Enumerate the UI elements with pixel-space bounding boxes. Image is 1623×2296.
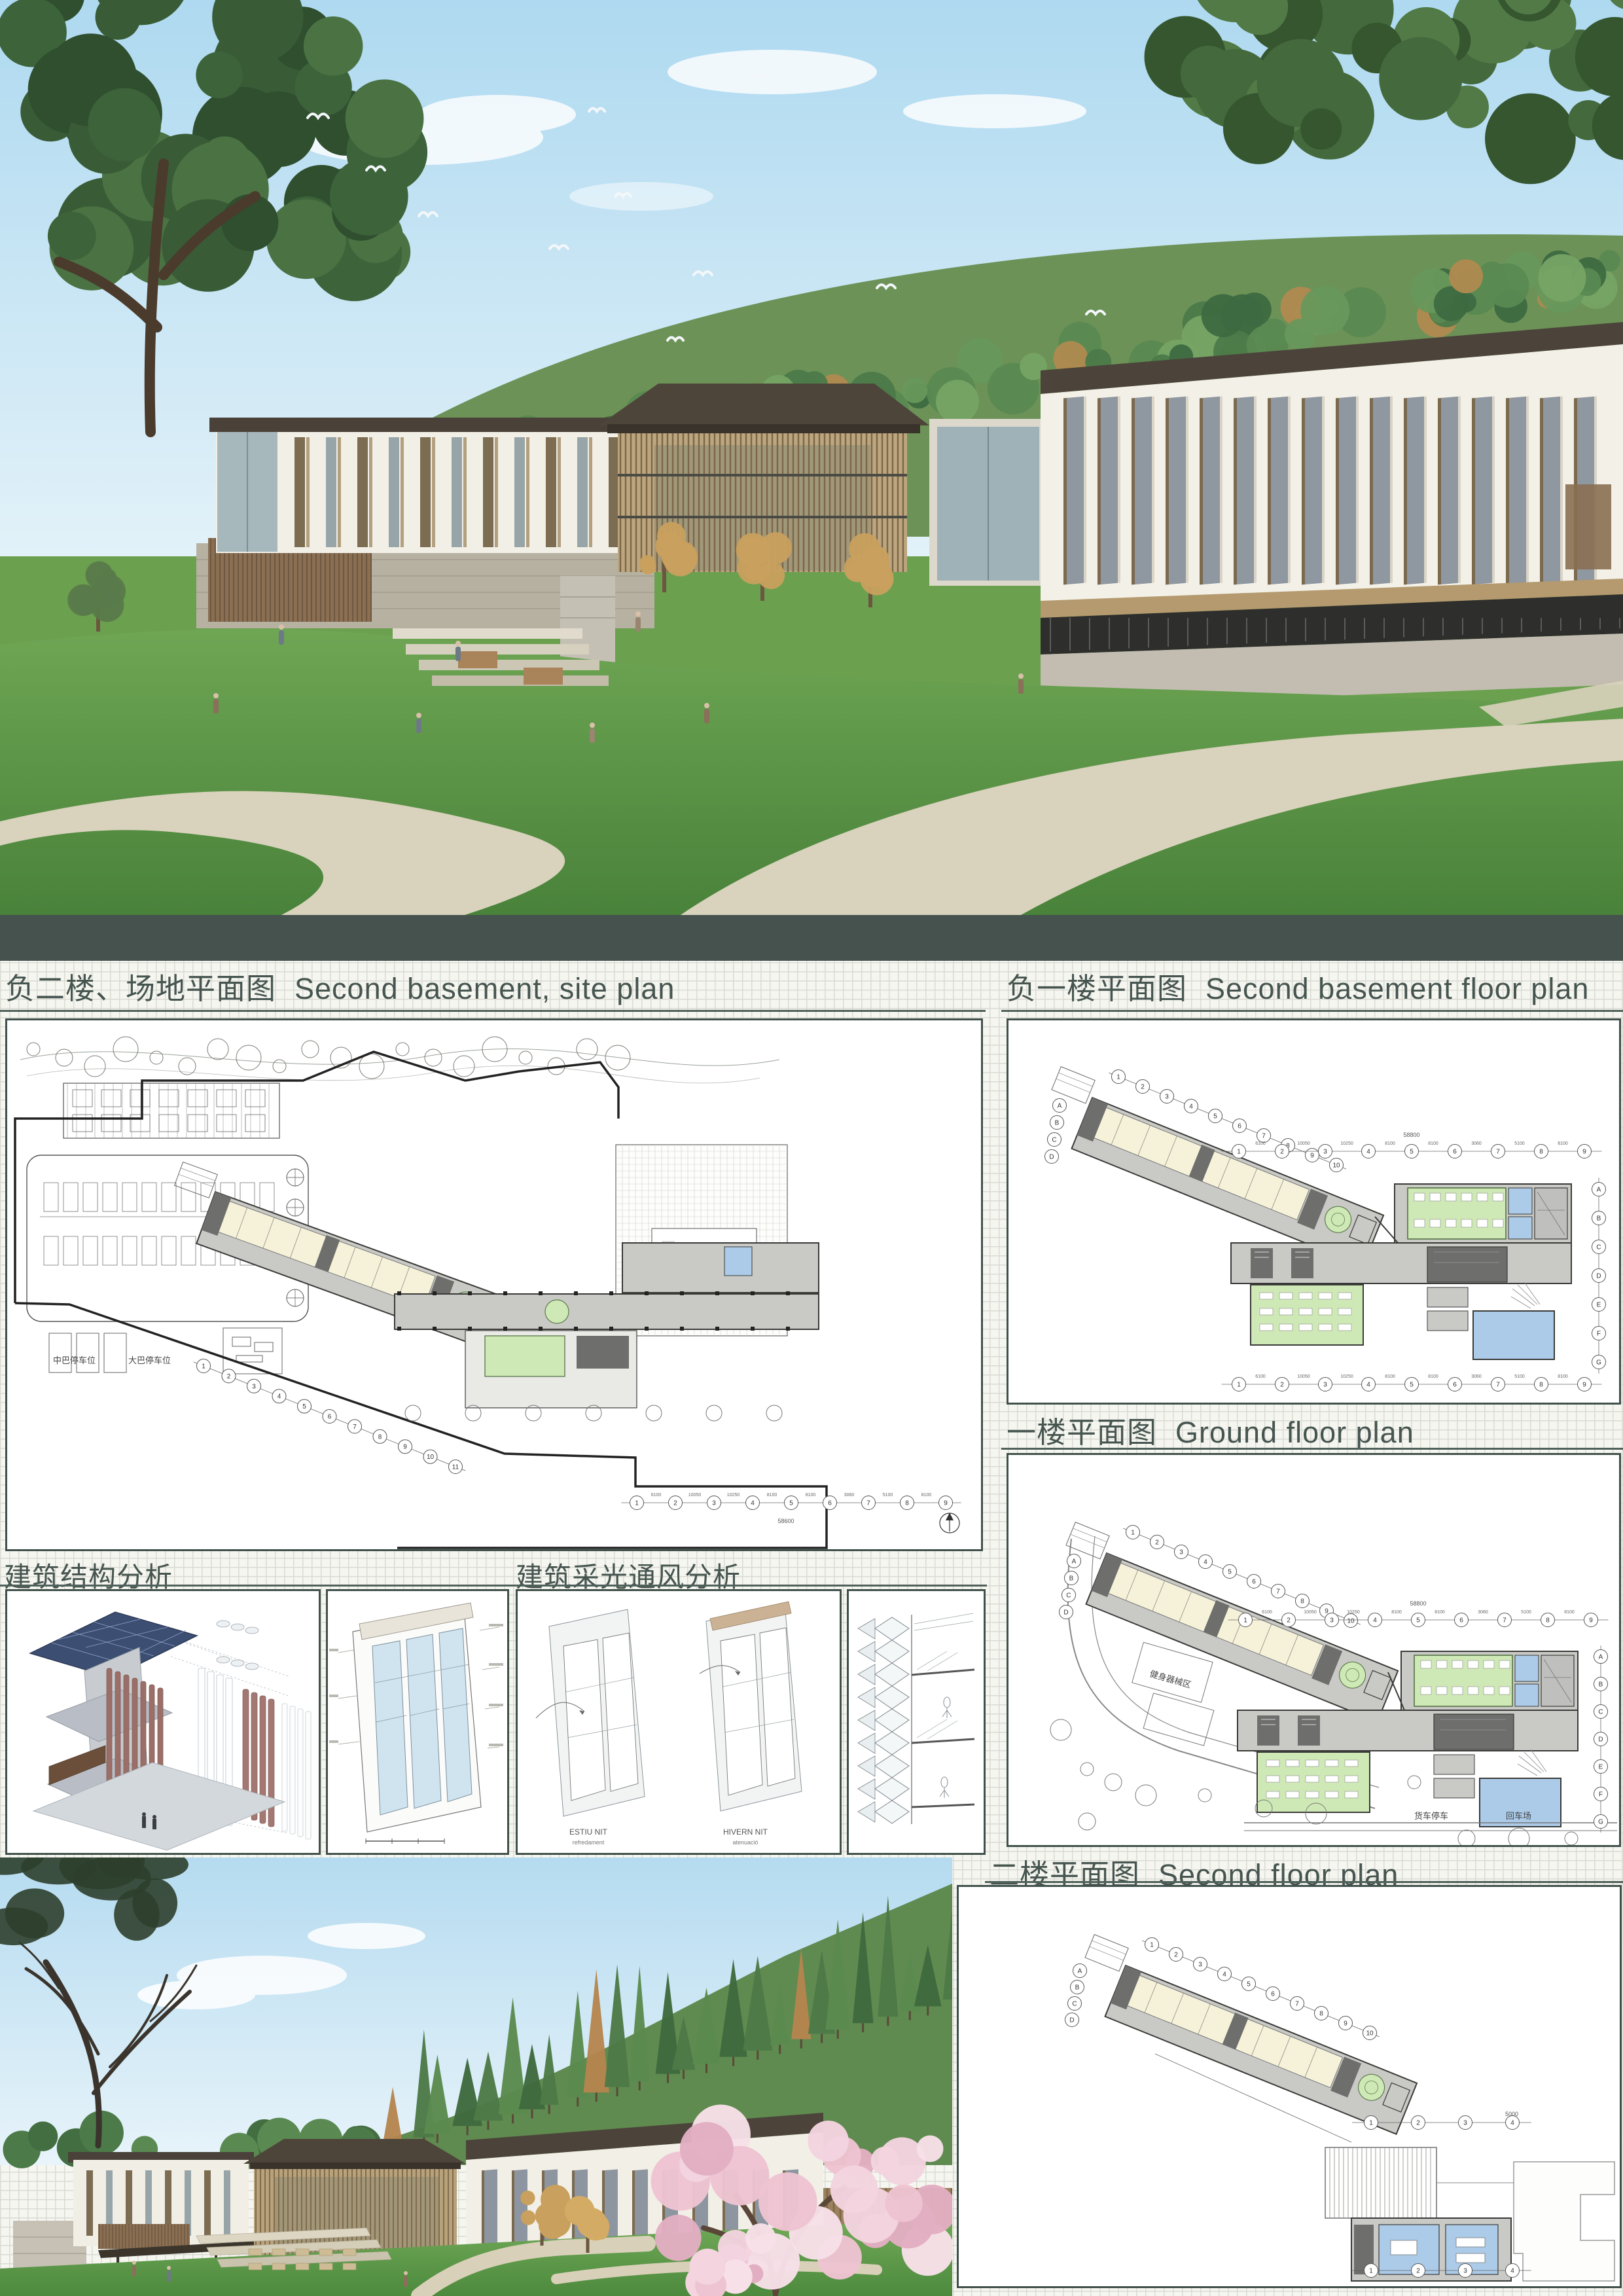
svg-text:B: B: [1075, 1984, 1080, 1992]
svg-text:C: C: [1066, 1592, 1071, 1600]
svg-text:3060: 3060: [1478, 1610, 1488, 1615]
svg-text:9: 9: [1589, 1617, 1593, 1624]
svg-text:6: 6: [828, 1500, 832, 1507]
svg-text:2: 2: [227, 1373, 231, 1380]
hero-render: [0, 0, 1623, 915]
svg-text:4: 4: [277, 1393, 281, 1401]
svg-text:8100: 8100: [1428, 1374, 1438, 1379]
svg-text:6100: 6100: [1255, 1374, 1266, 1379]
svg-text:8: 8: [1539, 1382, 1543, 1389]
svg-text:5100: 5100: [1514, 1141, 1525, 1146]
svg-text:A: A: [1597, 1187, 1601, 1194]
svg-text:1: 1: [1369, 2120, 1373, 2127]
svg-text:B: B: [1597, 1215, 1601, 1223]
svg-text:8: 8: [1300, 1598, 1304, 1605]
structure-exploded-axon-panel: [5, 1589, 321, 1855]
site-plan-title: 负二楼、场地平面图Second basement, site plan: [5, 965, 675, 1007]
svg-text:8100: 8100: [1564, 1610, 1575, 1615]
svg-text:G: G: [1598, 1819, 1603, 1826]
svg-text:8100: 8100: [806, 1493, 816, 1498]
svg-text:1: 1: [1369, 2268, 1373, 2275]
svg-text:4: 4: [1510, 2268, 1514, 2275]
svg-text:9: 9: [944, 1500, 948, 1507]
svg-text:2: 2: [1141, 1084, 1145, 1091]
svg-text:5100: 5100: [883, 1493, 893, 1498]
ground-total-dim: 58800: [1410, 1600, 1426, 1607]
svg-text:9: 9: [403, 1444, 407, 1451]
svg-text:3: 3: [1463, 2120, 1467, 2127]
svg-text:C: C: [1052, 1137, 1056, 1144]
svg-text:10: 10: [1366, 2030, 1374, 2037]
site-plan-panel: 中巴停车位 大巴停车位 1234567891011 12345678961001…: [5, 1018, 983, 1551]
svg-text:2: 2: [1416, 2268, 1420, 2275]
svg-text:8: 8: [1319, 2011, 1323, 2018]
svg-text:10: 10: [1332, 1162, 1340, 1170]
svg-text:8100: 8100: [921, 1493, 932, 1498]
site-plan-drawing: 中巴停车位 大巴停车位 1234567891011 12345678961001…: [7, 1020, 981, 1549]
svg-text:3: 3: [712, 1500, 716, 1507]
svg-text:10: 10: [427, 1454, 435, 1461]
svg-text:8100: 8100: [1428, 1141, 1438, 1146]
svg-text:C: C: [1598, 1709, 1603, 1716]
truck-parking-label: 货车停车: [1414, 1811, 1448, 1821]
svg-text:8100: 8100: [1435, 1610, 1445, 1615]
svg-text:4: 4: [1189, 1103, 1193, 1111]
b1-total-dim: 58800: [1403, 1132, 1419, 1138]
svg-text:7: 7: [866, 1500, 870, 1507]
exploded-axon-drawing: [7, 1591, 319, 1853]
svg-text:2: 2: [673, 1500, 677, 1507]
svg-text:5: 5: [1247, 1981, 1251, 1988]
fitness-area-label: 健身器械区: [1149, 1668, 1192, 1689]
svg-text:A: A: [1599, 1654, 1603, 1661]
site-plan-title-zh: 负二楼、场地平面图: [5, 972, 276, 1005]
north-arrow: [940, 1513, 959, 1533]
svg-text:5: 5: [1410, 1149, 1414, 1156]
svg-text:1: 1: [1237, 1149, 1241, 1156]
svg-text:6: 6: [328, 1414, 332, 1421]
svg-text:E: E: [1599, 1764, 1603, 1771]
svg-text:5: 5: [789, 1500, 793, 1507]
title-rule: [1001, 1010, 1623, 1012]
ground-plan-drawing: 健身器械区 货车停车 回车场 12345678910 ABCD 12345678…: [1008, 1455, 1619, 1845]
svg-text:8100: 8100: [1391, 1610, 1402, 1615]
svg-text:1: 1: [1131, 1530, 1135, 1537]
svg-text:5100: 5100: [1514, 1374, 1525, 1379]
svg-text:2: 2: [1280, 1382, 1284, 1389]
svg-text:3060: 3060: [1471, 1374, 1482, 1379]
svg-text:A: A: [1078, 1968, 1082, 1975]
svg-text:8: 8: [1546, 1617, 1550, 1624]
svg-text:C: C: [1072, 2001, 1077, 2008]
svg-text:7: 7: [1496, 1382, 1500, 1389]
svg-text:5: 5: [302, 1403, 306, 1410]
svg-text:A: A: [1072, 1558, 1077, 1566]
second-plan-drawing: 12345678910 ABCD 1234 1234 5000: [959, 1887, 1620, 2286]
b1-plan-title-en: Second basement floor plan: [1205, 972, 1589, 1005]
svg-text:5100: 5100: [1521, 1610, 1531, 1615]
svg-text:10050: 10050: [1304, 1610, 1317, 1615]
turnaround-label: 回车场: [1506, 1811, 1531, 1821]
svg-text:2: 2: [1174, 1952, 1178, 1959]
secondary-render-scene: [0, 1857, 952, 2296]
site-plan-title-en: Second basement, site plan: [294, 972, 675, 1005]
svg-text:4: 4: [1366, 1149, 1370, 1156]
title-rule: [1001, 1448, 1623, 1450]
section-perspective-drawing: [849, 1591, 984, 1853]
svg-text:3: 3: [252, 1383, 256, 1390]
svg-text:1: 1: [1116, 1074, 1120, 1081]
svg-text:2: 2: [1280, 1149, 1284, 1156]
svg-text:8100: 8100: [1558, 1374, 1568, 1379]
svg-text:4: 4: [1373, 1617, 1377, 1624]
svg-text:4: 4: [1510, 2120, 1514, 2127]
svg-text:6100: 6100: [1262, 1610, 1272, 1615]
ground-plan-title: 一楼平面图Ground floor plan: [1007, 1408, 1414, 1451]
secondary-render: [0, 1857, 952, 2296]
ground-plan-title-zh: 一楼平面图: [1007, 1416, 1157, 1449]
svg-text:D: D: [1596, 1273, 1601, 1280]
svg-text:D: D: [1069, 2017, 1074, 2024]
svg-text:2: 2: [1287, 1617, 1291, 1624]
svg-text:3060: 3060: [844, 1493, 855, 1498]
svg-text:7: 7: [1503, 1617, 1507, 1624]
b1-plan-panel: 12345678910 ABCD 12345678961001005010250…: [1007, 1018, 1621, 1405]
svg-text:1: 1: [202, 1363, 205, 1371]
title-rule: [985, 1881, 1623, 1883]
estiu-sublabel: refredament: [573, 1839, 605, 1846]
svg-text:3: 3: [1330, 1617, 1334, 1624]
svg-text:9: 9: [1582, 1382, 1586, 1389]
svg-text:1: 1: [1243, 1617, 1247, 1624]
svg-text:3: 3: [1463, 2268, 1467, 2275]
svg-text:5: 5: [1410, 1382, 1414, 1389]
svg-text:1: 1: [1150, 1942, 1154, 1949]
svg-text:5: 5: [1228, 1569, 1232, 1576]
svg-text:10050: 10050: [1297, 1374, 1310, 1379]
svg-text:9: 9: [1344, 2020, 1347, 2028]
svg-text:6100: 6100: [651, 1493, 662, 1498]
svg-text:1: 1: [1237, 1382, 1241, 1389]
svg-text:2: 2: [1416, 2120, 1420, 2127]
svg-text:2: 2: [1155, 1539, 1159, 1547]
svg-text:G: G: [1596, 1359, 1601, 1367]
svg-text:D: D: [1598, 1736, 1603, 1744]
svg-text:F: F: [1597, 1331, 1601, 1338]
svg-text:4: 4: [1366, 1382, 1370, 1389]
svg-text:9: 9: [1582, 1149, 1586, 1156]
ground-plan-panel: 健身器械区 货车停车 回车场 12345678910 ABCD 12345678…: [1007, 1453, 1621, 1847]
b1-plan-drawing: 12345678910 ABCD 12345678961001005010250…: [1008, 1020, 1619, 1403]
hivern-label: HIVERN NIT: [723, 1827, 768, 1837]
svg-text:B: B: [1069, 1575, 1074, 1583]
svg-text:8100: 8100: [1385, 1141, 1395, 1146]
svg-text:8100: 8100: [1385, 1374, 1395, 1379]
site-total-dim: 58600: [777, 1518, 794, 1524]
svg-text:4: 4: [751, 1500, 755, 1507]
svg-text:6: 6: [1271, 1991, 1275, 1998]
svg-text:D: D: [1049, 1154, 1054, 1161]
svg-text:10050: 10050: [688, 1493, 702, 1498]
svg-text:8: 8: [1539, 1149, 1543, 1156]
svg-text:7: 7: [1295, 2001, 1299, 2008]
svg-text:10250: 10250: [727, 1493, 740, 1498]
svg-text:10250: 10250: [1340, 1374, 1353, 1379]
svg-text:8100: 8100: [1558, 1141, 1568, 1146]
facade-detail-panel: [326, 1589, 509, 1855]
svg-text:5: 5: [1213, 1113, 1217, 1121]
svg-text:7: 7: [353, 1424, 357, 1431]
svg-text:6: 6: [1238, 1123, 1241, 1130]
daylight-ventilation-drawing: ESTIU NIT refredament HIVERN NIT atenuac…: [518, 1591, 840, 1853]
second-plan-panel: 12345678910 ABCD 1234 1234 5000: [957, 1885, 1622, 2288]
svg-text:3: 3: [1179, 1549, 1183, 1556]
ground-plan-title-en: Ground floor plan: [1175, 1416, 1414, 1449]
svg-text:3: 3: [1323, 1382, 1327, 1389]
svg-text:11: 11: [452, 1464, 459, 1471]
svg-text:B: B: [1055, 1120, 1060, 1127]
svg-text:10: 10: [1347, 1618, 1355, 1625]
label-rule: [0, 1585, 987, 1587]
svg-text:8: 8: [378, 1433, 382, 1441]
svg-text:7: 7: [1496, 1149, 1500, 1156]
svg-text:6100: 6100: [1255, 1141, 1266, 1146]
svg-text:7: 7: [1262, 1133, 1266, 1140]
hero-render-scene: [0, 0, 1623, 915]
svg-text:4: 4: [1204, 1559, 1207, 1566]
svg-text:6: 6: [1453, 1149, 1457, 1156]
svg-text:10250: 10250: [1347, 1610, 1360, 1615]
title-rule: [0, 1010, 986, 1012]
svg-text:9: 9: [1310, 1153, 1314, 1160]
svg-text:B: B: [1599, 1681, 1603, 1689]
bus-parking-label: 大巴停车位: [128, 1355, 171, 1365]
divider-band: [0, 915, 1623, 961]
svg-text:3: 3: [1323, 1149, 1327, 1156]
svg-text:8: 8: [905, 1500, 909, 1507]
b1-plan-title-zh: 负一楼平面图: [1007, 972, 1187, 1005]
second-wing-dim: 5000: [1505, 2111, 1518, 2117]
b1-plan-title: 负一楼平面图Second basement floor plan: [1007, 965, 1589, 1007]
svg-text:D: D: [1063, 1609, 1068, 1617]
svg-text:3060: 3060: [1471, 1141, 1482, 1146]
svg-text:F: F: [1599, 1791, 1603, 1799]
svg-text:3: 3: [1165, 1094, 1169, 1101]
svg-text:6: 6: [1252, 1579, 1256, 1586]
svg-text:5: 5: [1416, 1617, 1420, 1624]
daylight-ventilation-panel: ESTIU NIT refredament HIVERN NIT atenuac…: [516, 1589, 842, 1855]
svg-text:4: 4: [1222, 1971, 1226, 1979]
svg-text:3: 3: [1198, 1962, 1202, 1969]
minibus-parking-label: 中巴停车位: [53, 1355, 96, 1365]
svg-text:A: A: [1058, 1103, 1062, 1110]
svg-text:10050: 10050: [1297, 1141, 1310, 1146]
svg-text:6: 6: [1459, 1617, 1463, 1624]
section-perspective-panel: [847, 1589, 986, 1855]
svg-text:C: C: [1596, 1244, 1601, 1251]
svg-text:6: 6: [1453, 1382, 1457, 1389]
svg-text:10250: 10250: [1340, 1141, 1353, 1146]
svg-text:7: 7: [1276, 1588, 1280, 1596]
svg-text:E: E: [1597, 1302, 1601, 1309]
facade-detail-drawing: [328, 1591, 507, 1853]
svg-text:1: 1: [635, 1500, 639, 1507]
svg-text:8100: 8100: [767, 1493, 777, 1498]
estiu-label: ESTIU NIT: [569, 1827, 608, 1837]
hivern-sublabel: atenuació: [732, 1839, 758, 1846]
